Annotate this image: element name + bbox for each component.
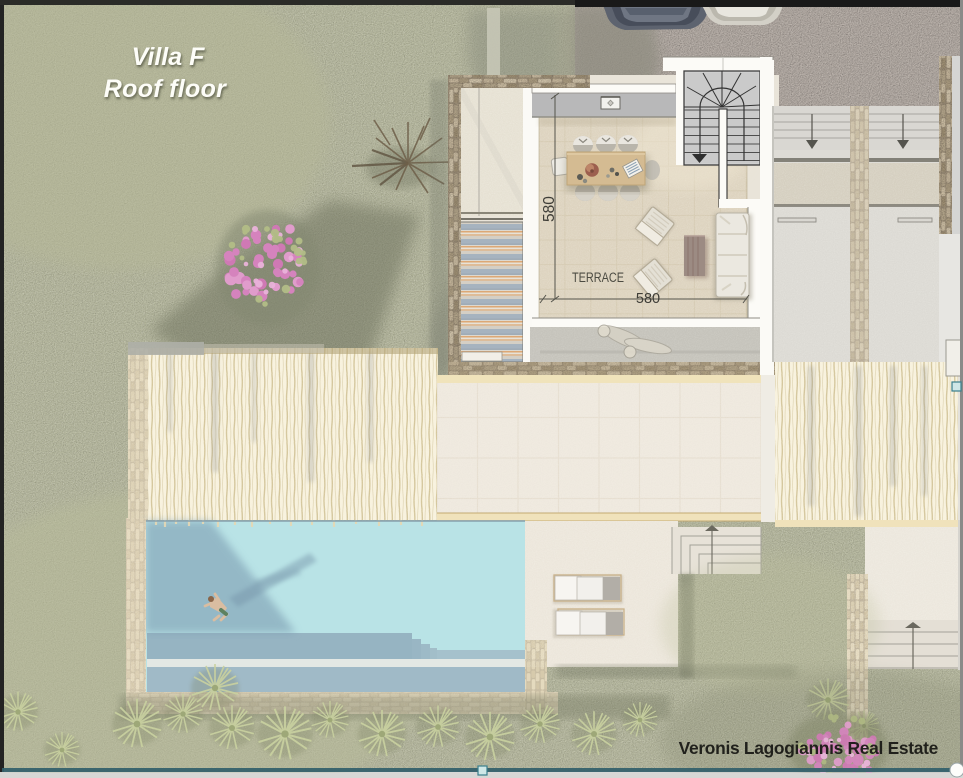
svg-text:580: 580 [636, 291, 660, 307]
svg-text:Villa F: Villa F [132, 43, 205, 71]
svg-text:TERRACE: TERRACE [572, 270, 624, 285]
svg-text:580: 580 [541, 196, 558, 222]
svg-text:Veronis Lagogiannis Real Estat: Veronis Lagogiannis Real Estate [679, 738, 939, 758]
svg-text:Roof floor: Roof floor [104, 75, 227, 103]
